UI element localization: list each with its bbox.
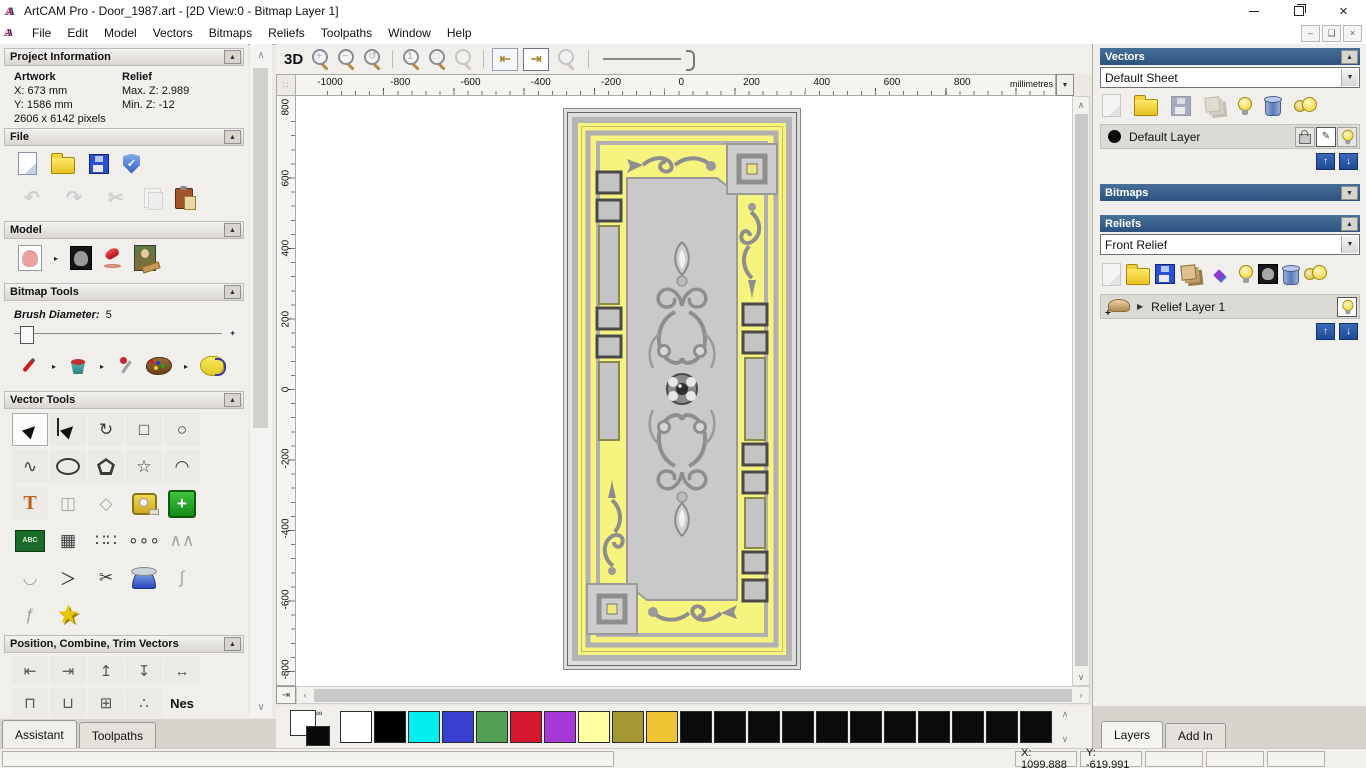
colour-picker-icon[interactable] [116,356,136,376]
tab-toolpaths-label: Toolpaths [92,729,143,743]
snap-next-view-button[interactable]: ⇥ [523,48,549,71]
vector-sheet-dropdown[interactable]: Default Sheet ▼ [1100,67,1360,88]
ruler-label: -400 [531,77,551,88]
chevron-down-icon[interactable]: ▼ [1341,236,1358,253]
create-text-tool[interactable]: T [12,487,48,520]
tab-toolpaths[interactable]: Toolpaths [79,722,156,748]
model-section-title: Model [10,224,42,236]
model-section-header: Model [4,221,244,239]
bitmaps-section-title: Bitmaps [1105,187,1148,199]
fit-curve-tool[interactable]: ∫ [164,561,200,594]
slider-handle[interactable] [20,326,34,344]
file-icons-row1: ✓ [4,146,244,179]
ruler-label: 400 [813,77,830,88]
toggle-layer-visibility-icon[interactable] [1237,96,1252,116]
palette-swatch[interactable] [816,711,848,743]
menu-item-model[interactable]: Model [96,23,145,43]
load-texture-image-icon[interactable] [134,245,156,271]
align-centre-in-page-icon[interactable]: ⊔ [50,689,86,717]
door-artwork [563,108,801,670]
vector-sheet-value: Default Sheet [1105,71,1178,85]
move-layer-down-button[interactable]: ↓ [1339,323,1358,340]
toggle-relief-visibility-icon[interactable] [1238,264,1253,284]
align-icons-row1: ⇤⇥↥↧↔ [4,653,212,685]
arrow-into-page-icon: ⇤ [500,51,511,67]
view-toolbar: 3D +−↺ 1□ ⇤ ⇥ [276,44,1092,74]
menu-item-bitmaps[interactable]: Bitmaps [201,23,260,43]
slider-handle[interactable] [686,50,695,71]
expand-arrow-icon[interactable]: ▶ [1137,302,1143,311]
align-top-icon[interactable]: ↥ [88,657,124,685]
palette-swatch[interactable] [1020,711,1052,743]
relief-layer-icon [1107,297,1131,317]
mdi-restore-button[interactable]: ❏ [1322,25,1341,42]
ruler-label: 0 [678,77,684,88]
menu-item-help[interactable]: Help [439,23,480,43]
file-icons-row2: ↶↷✂ [4,179,244,215]
align-icons-row2: ⊓⊔⊞∴Nes [4,685,212,717]
chevron-down-icon[interactable]: ▼ [1341,69,1358,86]
zoom-limits-icon[interactable] [453,48,475,70]
ruler-label: -600 [281,593,292,609]
palette-swatch[interactable] [578,711,610,743]
arrow-into-page-icon: ⇥ [531,51,542,67]
join-vectors-tool[interactable]: ＞ [50,561,86,594]
layer-colour-swatch[interactable] [1107,124,1121,150]
zoom-buttons: +−↺ [310,48,384,70]
model-icons-row: ▸ [4,239,244,275]
vectors-section-header: Vectors [1100,48,1360,65]
open-model-icon[interactable] [51,157,75,174]
vector-layer-row[interactable]: Default Layer ✎ [1100,124,1360,149]
file-section-title: File [10,131,29,143]
reduce-colours-icon[interactable] [200,356,224,376]
vectors-section-title: Vectors [1105,51,1145,63]
paste-along-curve-tool[interactable]: ∘∘∘ [126,524,162,557]
palette-swatch[interactable] [374,711,406,743]
save-relief-layer-icon[interactable] [1155,264,1175,284]
palette-swatch[interactable] [714,711,746,743]
invert-model-icon[interactable] [70,246,92,270]
ruler-label: -600 [460,77,480,88]
paint-brush-icon[interactable] [18,355,40,377]
create-ellipse-tool[interactable] [50,450,86,483]
ruler-label: 0 [281,382,292,398]
toolbar-separator [392,50,393,68]
flyout-arrow-icon: ▸ [182,353,190,379]
move-layer-up-button[interactable]: ↑ [1316,323,1335,340]
tab-add-in-label: Add In [1178,729,1213,743]
layers-panel: Vectors Default Sheet ▼ Default Layer ✎ … [1092,44,1366,706]
lock-icon [1299,134,1311,144]
reliefs-section-title: Reliefs [1105,218,1141,230]
scroll-down-icon[interactable]: ∨ [1073,669,1089,685]
merge-relief-layers-icon[interactable] [1180,264,1200,284]
ruler-label: -400 [281,523,292,539]
lighting-icon[interactable] [102,247,124,269]
open-relief-layer-icon[interactable] [1126,268,1150,285]
secondary-colour-swatch[interactable] [306,726,330,746]
create-rectangle-tool[interactable]: □ [126,413,162,446]
layer-visibility-button[interactable] [1337,127,1357,147]
document-icon: A [4,27,16,39]
right-tab-strip: Layers Add In [1092,706,1366,748]
menu-item-edit[interactable]: Edit [59,23,96,43]
palette-swatch[interactable] [884,711,916,743]
title-bar: A ArtCAM Pro - Door_1987.art - [2D View:… [0,0,1366,23]
vector-tools-grid: ▶▶↻□○∿☆◠T◫◇+ABC▦∷∷∘∘∘∧∧◡＞✂∫ƒ★ [4,409,244,631]
vector-tools-header: Vector Tools [4,391,244,409]
mdi-minimize-button[interactable]: – [1301,25,1320,42]
save-model-icon[interactable] [89,154,109,174]
canvas-horizontal-scrollbar[interactable]: ‹ › [296,686,1090,704]
reliefs-section-header: Reliefs [1100,215,1360,232]
artcam-window: A ArtCAM Pro - Door_1987.art - [2D View:… [0,0,1366,768]
set-model-size-icon[interactable] [18,245,42,271]
redo-icon[interactable]: ↷ [60,185,88,211]
flyout-arrow-icon: ▸ [52,245,60,271]
scroll-up-icon[interactable]: ∧ [250,46,272,64]
snap-previous-view-button[interactable]: ⇤ [492,48,518,71]
primary-secondary-colour[interactable]: ∞ [288,708,340,746]
relief-visibility-button[interactable] [1337,297,1357,317]
new-model-icon[interactable] [18,152,37,175]
palette-swatch[interactable] [510,711,542,743]
measure-tool[interactable] [126,487,162,520]
palette-swatch[interactable] [646,711,678,743]
delete-vector-layer-icon[interactable] [1265,98,1281,116]
tab-layers[interactable]: Layers [1101,721,1163,748]
flood-fill-icon[interactable] [68,357,88,375]
cursor-y-readout: Y: -619.991 [1080,751,1142,767]
toggle-all-reliefs-icon[interactable] [1304,264,1326,284]
fit-arcs-tool[interactable]: ◡ [12,561,48,594]
scroll-right-icon[interactable]: › [1073,687,1089,703]
relief-max-z-value: Max. Z: 2.989 [122,84,244,98]
menu-items: FileEditModelVectorsBitmapsReliefsToolpa… [24,23,480,43]
spin-relief-tool[interactable] [126,561,162,594]
artwork-x-value: X: 673 mm [14,84,122,98]
assistant-panel: Project Information ArtworkRelief X: 673… [0,44,248,718]
align-left-icon[interactable]: ⇤ [12,657,48,685]
canvas-vertical-scrollbar[interactable]: ∧ ∨ [1072,96,1090,686]
palette-swatch[interactable] [612,711,644,743]
collapse-section-button[interactable] [1341,50,1358,64]
relief-preview-icon[interactable] [1258,264,1278,284]
relief-label: Relief [122,70,244,84]
offset-vectors-tool[interactable]: ◇ [88,487,124,520]
artwork-pixels-value: 2606 x 6142 pixels [14,112,106,126]
palette-swatch[interactable] [408,711,440,743]
slider-track [14,333,222,334]
restore-button[interactable] [1276,0,1321,22]
undo-icon[interactable]: ↶ [18,185,46,211]
menu-item-reliefs[interactable]: Reliefs [260,23,313,43]
ruler-label: -200 [281,452,292,468]
scatter-copies-icon[interactable]: ∴ [126,689,162,717]
2d-view-canvas[interactable] [296,96,1073,686]
scrollbar-thumb[interactable] [1075,114,1088,666]
preview-view-button[interactable] [554,48,580,71]
ruler-label: -800 [390,77,410,88]
toggle-all-layers-icon[interactable] [1294,96,1316,116]
preferences-shield-icon[interactable]: ✓ [123,154,140,174]
expand-section-button[interactable] [1341,186,1358,200]
collapse-section-button[interactable] [224,50,241,64]
tab-assistant[interactable]: Assistant [2,720,77,748]
align-centre-icon[interactable]: ⊓ [12,689,48,717]
palette-swatch[interactable] [986,711,1018,743]
text-block-tool[interactable]: ABC [12,524,48,557]
node-editing-tool[interactable]: ▶ [50,413,86,446]
window-title: ArtCAM Pro - Door_1987.art - [2D View:0 … [24,4,339,18]
collapse-section-button[interactable] [224,223,241,237]
paste-icon[interactable] [175,188,193,209]
scroll-down-icon[interactable]: ∨ [250,698,272,716]
scroll-left-icon[interactable]: ‹ [297,687,313,703]
assistant-scrollbar[interactable]: ∧ ∨ [250,44,272,718]
ruler-label: -1000 [317,77,343,88]
artcam-logo-icon: A [5,5,18,18]
tab-layers-label: Layers [1114,728,1150,742]
tab-add-in[interactable]: Add In [1165,723,1226,748]
new-vector-layer-icon[interactable] [1102,94,1121,117]
status-field [1267,751,1325,767]
relief-dropdown[interactable]: Front Relief ▼ [1100,234,1360,255]
bitmap-tools-title: Bitmap Tools [10,286,79,298]
ruler-label: -800 [281,664,292,680]
scroll-up-icon[interactable]: ∧ [1073,97,1089,113]
relief-value: Front Relief [1105,238,1167,252]
menu-bar: A FileEditModelVectorsBitmapsReliefsTool… [0,22,1366,45]
distort-vectors-tool[interactable]: ▦ [50,524,86,557]
align-bottom-icon[interactable]: ↧ [126,657,162,685]
ruler-label: -200 [601,77,621,88]
vector-texture-tool[interactable]: ∧∧ [164,524,200,557]
toggle-3d-view-button[interactable]: 3D [284,51,303,68]
collapse-section-button[interactable] [224,637,241,651]
lightbulb-icon [1341,299,1353,315]
ruler-label: 400 [281,241,292,257]
status-field [1206,751,1264,767]
new-relief-layer-icon[interactable] [1102,263,1121,286]
palette-swatch[interactable] [442,711,474,743]
colour-palette-icon[interactable] [146,357,172,375]
slider-track [603,58,681,60]
vector-tools-title: Vector Tools [10,394,75,406]
flyout-arrow-icon: ▸ [50,353,58,379]
ruler-label: 800 [281,100,292,116]
artwork-y-value: Y: 1586 mm [14,98,122,112]
create-polygon-tool[interactable] [88,450,124,483]
vector-layer-name: Default Layer [1129,130,1294,144]
brush-diameter-slider[interactable]: ✦ [14,325,236,343]
tab-assistant-label: Assistant [15,728,64,742]
mdi-close-button[interactable]: × [1343,25,1362,42]
snap-layer-button[interactable]: ✎ [1316,127,1336,147]
project-information-header: Project Information [4,48,244,66]
relief-layer-name: Relief Layer 1 [1151,300,1336,314]
horizontal-ruler: millimetres -1000-800-600-400-2000200400… [296,74,1056,96]
colour-palette: ∞ ∧ ∨ [276,706,1092,748]
palette-swatch[interactable] [918,711,950,743]
palette-swatch[interactable] [340,711,372,743]
status-spacer [617,751,1012,767]
scroll-down-icon[interactable]: ∨ [1062,734,1069,745]
file-section-header: File [4,128,244,146]
pan-mode-button[interactable]: ⇥ [276,686,296,704]
block-paste-tool[interactable]: ∷∷ [88,524,124,557]
align-centre-h-icon[interactable]: ↔ [164,657,200,685]
collapse-section-button[interactable] [224,393,241,407]
ruler-origin-button[interactable]: ∷ [276,74,296,96]
combine-relief-icon[interactable]: ◆ [1205,261,1233,287]
nesting-icon[interactable]: Nes [164,689,200,717]
copy-icon[interactable] [144,188,161,208]
vector-layer-toolbar [1100,88,1360,121]
minimize-button[interactable] [1231,0,1276,22]
move-layer-up-button[interactable]: ↑ [1316,153,1335,170]
brush-diameter-value: 5 [106,309,112,321]
create-arc-tool[interactable]: ◠ [164,450,200,483]
palette-swatch[interactable] [748,711,780,743]
assistant-tab-strip: Assistant Toolpaths [0,719,276,748]
palette-swatch[interactable] [850,711,882,743]
vertical-ruler: 8006004002000-200-400-600-800 [276,96,296,686]
flyout-arrow-icon: ▸ [98,353,106,379]
create-circle-tool[interactable]: ○ [164,413,200,446]
ruler-label: 200 [281,311,292,327]
menu-item-toolpaths[interactable]: Toolpaths [313,23,380,43]
lock-layer-button[interactable] [1295,127,1315,147]
palette-swatch[interactable] [544,711,576,743]
menu-item-window[interactable]: Window [380,23,439,43]
save-vector-layer-icon[interactable] [1171,96,1191,116]
collapse-section-button[interactable] [224,130,241,144]
status-field [1145,751,1203,767]
project-information-title: Project Information [10,51,111,63]
bitmap-tools-header: Bitmap Tools [4,283,244,301]
relief-min-z-value: Min. Z: -12 [122,98,244,112]
create-star-tool[interactable]: ☆ [126,450,162,483]
collapse-section-button[interactable] [224,285,241,299]
ruler-label: 200 [743,77,760,88]
palette-swatch[interactable] [782,711,814,743]
create-freeform-shape-tool[interactable]: ∿ [12,450,48,483]
transform-vectors-tool[interactable]: ↻ [88,413,124,446]
merge-vector-layers-icon[interactable] [1204,96,1224,116]
wrap-text-tool[interactable]: ◫ [50,487,86,520]
move-layer-down-button[interactable]: ↓ [1339,153,1358,170]
paste-in-position-icon[interactable]: ⊞ [88,689,124,717]
position-section-title: Position, Combine, Trim Vectors [10,638,179,650]
toolbar-separator [588,50,589,68]
bitmap-tool-icons: ▸▸▸ [4,343,244,383]
lightbulb-icon [1341,129,1353,145]
palette-scrollbar[interactable]: ∧ ∨ [1056,707,1074,747]
zoom-in-icon[interactable]: + [310,48,332,70]
scroll-up-icon[interactable]: ∧ [1062,709,1069,720]
pencil-icon: ✎ [1322,131,1330,142]
slider-marker-icon: ✦ [229,329,236,338]
cursor-x-readout: X: 1099.888 [1015,751,1077,767]
ruler-unit-label: millimetres [1010,79,1053,89]
collapse-section-button[interactable] [1341,217,1358,231]
palette-swatch[interactable] [680,711,712,743]
select-vectors-tool[interactable]: ▶ [12,413,48,446]
ruler-label: 600 [281,170,292,186]
zoom-1to1-icon[interactable]: 1 [401,48,423,70]
close-button[interactable]: × [1321,0,1366,22]
ruler-label: 800 [954,77,971,88]
palette-swatch[interactable] [476,711,508,743]
doctor-vectors-tool[interactable]: + [164,487,200,520]
view-fade-slider[interactable] [603,49,695,69]
open-vector-layer-icon[interactable] [1134,99,1158,116]
mirror-vectors-tool[interactable]: ƒ [12,598,48,631]
ruler-label: 600 [884,77,901,88]
relief-layer-row[interactable]: ▶ Relief Layer 1 [1100,294,1360,319]
palette-swatches [340,711,1052,743]
status-bar: X: 1099.888 Y: -619.991 [0,748,1366,768]
star-wizard-tool[interactable]: ★ [50,598,86,631]
zoom-out-icon[interactable]: − [336,48,358,70]
link-colours-icon[interactable]: ∞ [316,708,322,718]
delete-relief-layer-icon[interactable] [1283,267,1299,285]
menu-item-vectors[interactable]: Vectors [145,23,201,43]
cut-icon[interactable]: ✂ [102,185,130,211]
scrollbar-thumb[interactable] [253,68,268,428]
zoom-objects-icon[interactable]: □ [427,48,449,70]
palette-swatch[interactable] [952,711,984,743]
bitmaps-section-header: Bitmaps [1100,184,1360,201]
zoom-previous-icon[interactable]: ↺ [362,48,384,70]
trim-vectors-tool[interactable]: ✂ [88,561,124,594]
scrollbar-thumb[interactable] [314,689,1072,702]
position-section-header: Position, Combine, Trim Vectors [4,635,244,653]
brush-diameter-label: Brush Diameter: [14,309,100,321]
project-information-body: ArtworkRelief X: 673 mmMax. Z: 2.989 Y: … [4,66,244,128]
zoom-buttons-2: 1□ [401,48,475,70]
toolbar-separator [483,50,484,68]
ruler-unit-dropdown[interactable]: ▼ [1056,74,1074,96]
menu-item-file[interactable]: File [24,23,59,43]
artwork-label: Artwork [14,70,122,84]
status-message-field [2,751,614,767]
preview-magnifier-icon [556,48,578,70]
relief-layer-toolbar: ◆ [1100,255,1360,291]
align-right-icon[interactable]: ⇥ [50,657,86,685]
